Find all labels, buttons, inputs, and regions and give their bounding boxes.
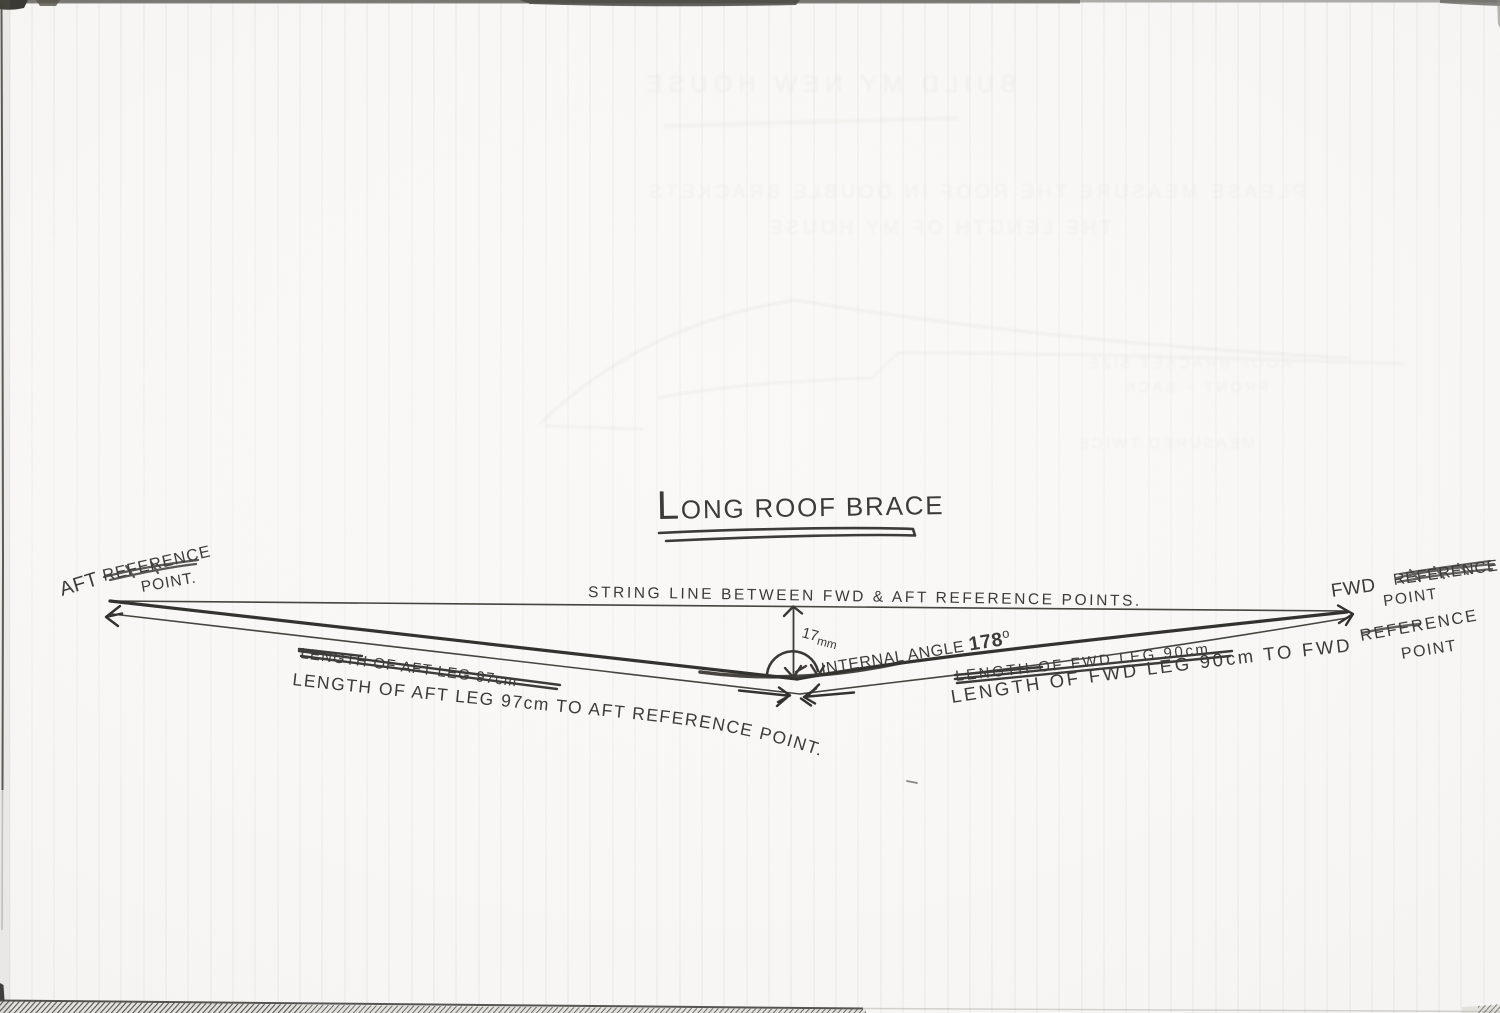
svg-text:ROOF BRACKET SIZE: ROOF BRACKET SIZE [1085, 355, 1292, 372]
svg-text:FRONT + BACK: FRONT + BACK [1123, 379, 1268, 396]
svg-text:BUILD MY NEW HOUSE: BUILD MY NEW HOUSE [640, 71, 1016, 98]
svg-text:THE LENGTH OF MY HOUSE: THE LENGTH OF MY HOUSE [766, 218, 1112, 239]
svg-text:PLEASE MEASURE THE ROOF IN DOU: PLEASE MEASURE THE ROOF IN DOUBLE BRACKE… [645, 182, 1305, 203]
svg-text:MEASURED TWICE: MEASURED TWICE [1076, 435, 1255, 452]
